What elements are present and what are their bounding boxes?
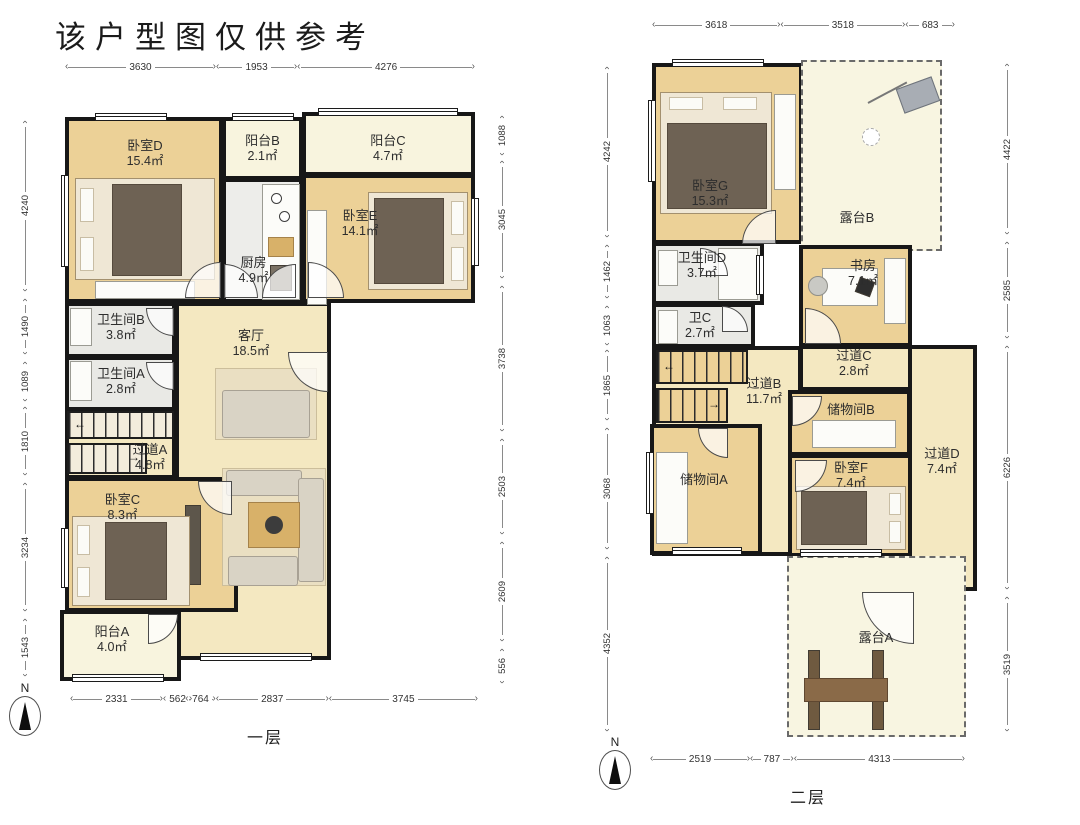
room-area: 18.5㎡: [205, 344, 297, 360]
dimension-value: 2519: [686, 754, 714, 765]
room-area: 2.8㎡: [75, 382, 167, 398]
dimension-segment: 2331: [70, 694, 163, 705]
dimension-value: 3745: [389, 694, 417, 705]
room-area: 7.4㎡: [911, 462, 973, 478]
room-label: 过道A 4.8㎡: [110, 442, 190, 474]
room-name: 卫生间D: [656, 250, 748, 266]
dimension-value: 1953: [242, 62, 270, 73]
dimension-segment: 2585: [1002, 238, 1013, 342]
room-label: 厨房 4.9㎡: [213, 255, 294, 287]
room-label: 书房 7.1㎡: [818, 258, 908, 290]
sofa-icon: [226, 470, 302, 496]
room-area: 4.7㎡: [328, 149, 448, 165]
dimension-segment: 1089: [20, 358, 31, 404]
dimension-value: 4313: [865, 754, 893, 765]
cabinet-icon: [95, 281, 195, 299]
dimension-value: 2609: [497, 578, 508, 605]
wardrobe-icon: [774, 94, 796, 190]
room-area: 15.3㎡: [655, 194, 765, 210]
shelf-icon: [812, 420, 896, 448]
dim-strip-f2-left: 4242 1462 1063 1865 3068 4352: [600, 63, 614, 735]
room-label: 卧室E 14.1㎡: [300, 208, 420, 240]
room-name: 阳台A: [66, 624, 158, 640]
dimension-value: 4240: [20, 192, 31, 219]
window-icon: [72, 674, 164, 682]
dimension-value: 4352: [602, 630, 613, 657]
sofa-icon: [228, 556, 298, 586]
compass-ring: [599, 750, 631, 790]
window-icon: [672, 59, 764, 67]
dimension-segment: 4242: [602, 63, 613, 241]
window-icon: [61, 528, 69, 588]
room-name: 卧室G: [655, 178, 765, 194]
dimension-value: 1462: [602, 258, 613, 285]
room-name: 露台B: [812, 210, 902, 226]
dimension-value: 3738: [497, 345, 508, 372]
floor2-name: 二层: [790, 784, 826, 808]
room-area: 3.7㎡: [656, 266, 748, 282]
dimension-value: 2331: [102, 694, 130, 705]
room-name: 过道C: [808, 348, 900, 364]
dimension-value: 1089: [20, 368, 31, 395]
stairs-direction-arrow: ←: [663, 360, 675, 372]
dimension-segment: 562: [163, 694, 185, 705]
window-icon: [61, 175, 69, 267]
dimension-value: 3234: [20, 534, 31, 561]
dimension-value: 3519: [1002, 651, 1013, 678]
sofa-icon: [298, 478, 324, 582]
dimension-value: 1543: [20, 634, 31, 661]
room-area: 7.4㎡: [805, 476, 897, 492]
dim-strip-f1-top: 3630 1953 4276: [65, 60, 475, 74]
room-label: 阳台A 4.0㎡: [66, 624, 158, 656]
dim-strip-f1-bottom: 2331 562 764 2837 3745: [70, 692, 478, 706]
room-area: 2.8㎡: [808, 364, 900, 380]
dimension-value: 3630: [126, 62, 154, 73]
room-area: 15.4㎡: [95, 154, 195, 170]
room-label: 露台A: [830, 630, 922, 646]
room-label: 过道D 7.4㎡: [911, 446, 973, 478]
room-name: 厨房: [213, 255, 294, 271]
room-area: 2.1㎡: [222, 149, 303, 165]
dimension-segment: 3045: [497, 157, 508, 282]
dimension-segment: 1063: [602, 302, 613, 347]
dim-strip-f2-top: 3618 3518 683: [652, 18, 955, 32]
shelf-icon: [656, 452, 688, 544]
compass-needle: [609, 756, 621, 784]
compass-north-label: N: [8, 682, 42, 694]
dimension-value: 764: [189, 694, 212, 705]
room-area: 11.7㎡: [718, 392, 810, 408]
room-area: 14.1㎡: [300, 224, 420, 240]
dim-strip-f2-right: 4422 2585 6226 3519: [1000, 60, 1014, 735]
room-name: 卫生间B: [75, 312, 167, 328]
room-name: 书房: [818, 258, 908, 274]
room-label: 客厅 18.5㎡: [205, 328, 297, 360]
window-icon: [756, 255, 764, 295]
dimension-value: 4422: [1002, 136, 1013, 163]
room-area: 7.1㎡: [818, 274, 908, 290]
table-icon: [804, 678, 888, 702]
dimension-segment: 1088: [497, 112, 508, 157]
floorplan-canvas: 该户型图仅供参考 3630 1953 4276 4240 1490 1089 1…: [0, 0, 1080, 825]
window-icon: [648, 100, 656, 182]
room-label: 储物间A: [658, 472, 750, 488]
room-name: 卧室E: [300, 208, 420, 224]
room-name: 阳台B: [222, 133, 303, 149]
room-name: 卫C: [658, 310, 742, 326]
dim-strip-f1-left: 4240 1490 1089 1810 3234 1543: [18, 117, 32, 680]
room-name: 客厅: [205, 328, 297, 344]
dimension-segment: 4422: [1002, 60, 1013, 238]
dimension-segment: 3068: [602, 424, 613, 552]
room-label: 卧室D 15.4㎡: [95, 138, 195, 170]
dimension-segment: 3234: [20, 479, 31, 615]
dimension-value: 683: [919, 20, 942, 31]
stairs-direction-arrow: ←: [74, 418, 86, 430]
dimension-segment: 683: [905, 20, 955, 31]
room-label: 卫C 2.7㎡: [658, 310, 742, 342]
room-label: 卧室C 8.3㎡: [75, 492, 170, 524]
room-name: 过道D: [911, 446, 973, 462]
window-icon: [95, 113, 167, 121]
room-label: 储物间B: [805, 402, 897, 418]
room-area: 2.7㎡: [658, 326, 742, 342]
dimension-value: 556: [497, 655, 508, 677]
dimension-segment: 2837: [216, 694, 329, 705]
dimension-value: 1810: [20, 428, 31, 455]
room-name: 卫生间A: [75, 366, 167, 382]
room-area: 4.8㎡: [110, 458, 190, 474]
dimension-segment: 1865: [602, 346, 613, 424]
room-label: 卫生间D 3.7㎡: [656, 250, 748, 282]
dimension-segment: 1462: [602, 241, 613, 302]
dimension-value: 3618: [702, 20, 730, 31]
room-name: 储物间A: [658, 472, 750, 488]
dimension-segment: 4313: [794, 754, 965, 765]
room-name: 露台A: [830, 630, 922, 646]
room-label: 阳台B 2.1㎡: [222, 133, 303, 165]
room-label: 卧室F 7.4㎡: [805, 460, 897, 492]
dimension-value: 4242: [602, 138, 613, 165]
dimension-segment: 1810: [20, 403, 31, 479]
dimension-value: 1088: [497, 122, 508, 149]
dimension-value: 2503: [497, 473, 508, 500]
dimension-segment: 787: [750, 754, 794, 765]
disclaimer-title: 该户型图仅供参考: [55, 12, 375, 57]
dimension-segment: 4352: [602, 553, 613, 735]
dimension-segment: 1490: [20, 295, 31, 358]
room-area: 4.9㎡: [213, 271, 294, 287]
room-label: 露台B: [812, 210, 902, 226]
compass-needle: [19, 702, 31, 730]
dimension-segment: 3630: [65, 62, 216, 73]
sofa-icon: [222, 390, 310, 438]
coffee-table-icon: [248, 502, 300, 548]
room-label: 过道C 2.8㎡: [808, 348, 900, 380]
room-name: 卧室F: [805, 460, 897, 476]
room-name: 卧室D: [95, 138, 195, 154]
dimension-value: 1865: [602, 372, 613, 399]
dim-strip-f2-bottom: 2519 787 4313: [650, 752, 965, 766]
dimension-value: 3045: [497, 206, 508, 233]
dim-strip-f1-right: 1088 3045 3738 2503 2609 556: [495, 112, 509, 668]
window-icon: [672, 547, 742, 555]
dimension-segment: 2503: [497, 435, 508, 538]
room-area: 8.3㎡: [75, 508, 170, 524]
room-name: 卧室C: [75, 492, 170, 508]
room-name: 过道B: [718, 376, 810, 392]
floor1-name: 一层: [247, 724, 283, 748]
dimension-value: 2837: [258, 694, 286, 705]
dimension-segment: 3745: [329, 694, 478, 705]
room-area: 4.0㎡: [66, 640, 158, 656]
compass-north-label: N: [598, 736, 632, 748]
bed-icon: [72, 516, 190, 606]
room-label: 卫生间B 3.8㎡: [75, 312, 167, 344]
dimension-value: 1490: [20, 313, 31, 340]
bed-icon: [796, 486, 906, 550]
room-name: 储物间B: [805, 402, 897, 418]
compass-icon: N: [8, 682, 42, 736]
dimension-value: 6226: [1002, 454, 1013, 481]
dimension-value: 4276: [372, 62, 400, 73]
window-icon: [232, 113, 294, 121]
bed-icon: [75, 178, 215, 280]
dimension-segment: 4240: [20, 117, 31, 295]
compass-ring: [9, 696, 41, 736]
window-icon: [200, 653, 312, 661]
room-area: 3.8㎡: [75, 328, 167, 344]
bed-icon: [368, 192, 468, 290]
dimension-segment: 764: [185, 694, 215, 705]
dimension-segment: 4276: [297, 62, 475, 73]
dimension-segment: 3618: [652, 20, 780, 31]
dimension-segment: 3518: [780, 20, 905, 31]
room-label: 过道B 11.7㎡: [718, 376, 810, 408]
room-name: 阳台C: [328, 133, 448, 149]
room-label: 卧室G 15.3㎡: [655, 178, 765, 210]
dimension-segment: 556: [497, 645, 508, 668]
room-label: 卫生间A 2.8㎡: [75, 366, 167, 398]
dimension-value: 2585: [1002, 277, 1013, 304]
dimension-segment: 6226: [1002, 342, 1013, 593]
dimension-segment: 3519: [1002, 593, 1013, 735]
window-icon: [471, 198, 479, 266]
dimension-segment: 1953: [216, 62, 297, 73]
dimension-value: 3068: [602, 475, 613, 502]
parasol-hub: [862, 128, 880, 146]
window-icon: [646, 452, 654, 514]
window-icon: [800, 549, 882, 557]
room-name: 过道A: [110, 442, 190, 458]
dimension-value: 787: [761, 754, 784, 765]
dimension-segment: 2609: [497, 538, 508, 645]
dimension-value: 3518: [829, 20, 857, 31]
dimension-segment: 1543: [20, 615, 31, 680]
dimension-segment: 3738: [497, 282, 508, 436]
window-icon: [318, 108, 458, 116]
compass-icon: N: [598, 736, 632, 790]
dimension-value: 1063: [602, 312, 613, 339]
dimension-segment: 2519: [650, 754, 750, 765]
room-label: 阳台C 4.7㎡: [328, 133, 448, 165]
